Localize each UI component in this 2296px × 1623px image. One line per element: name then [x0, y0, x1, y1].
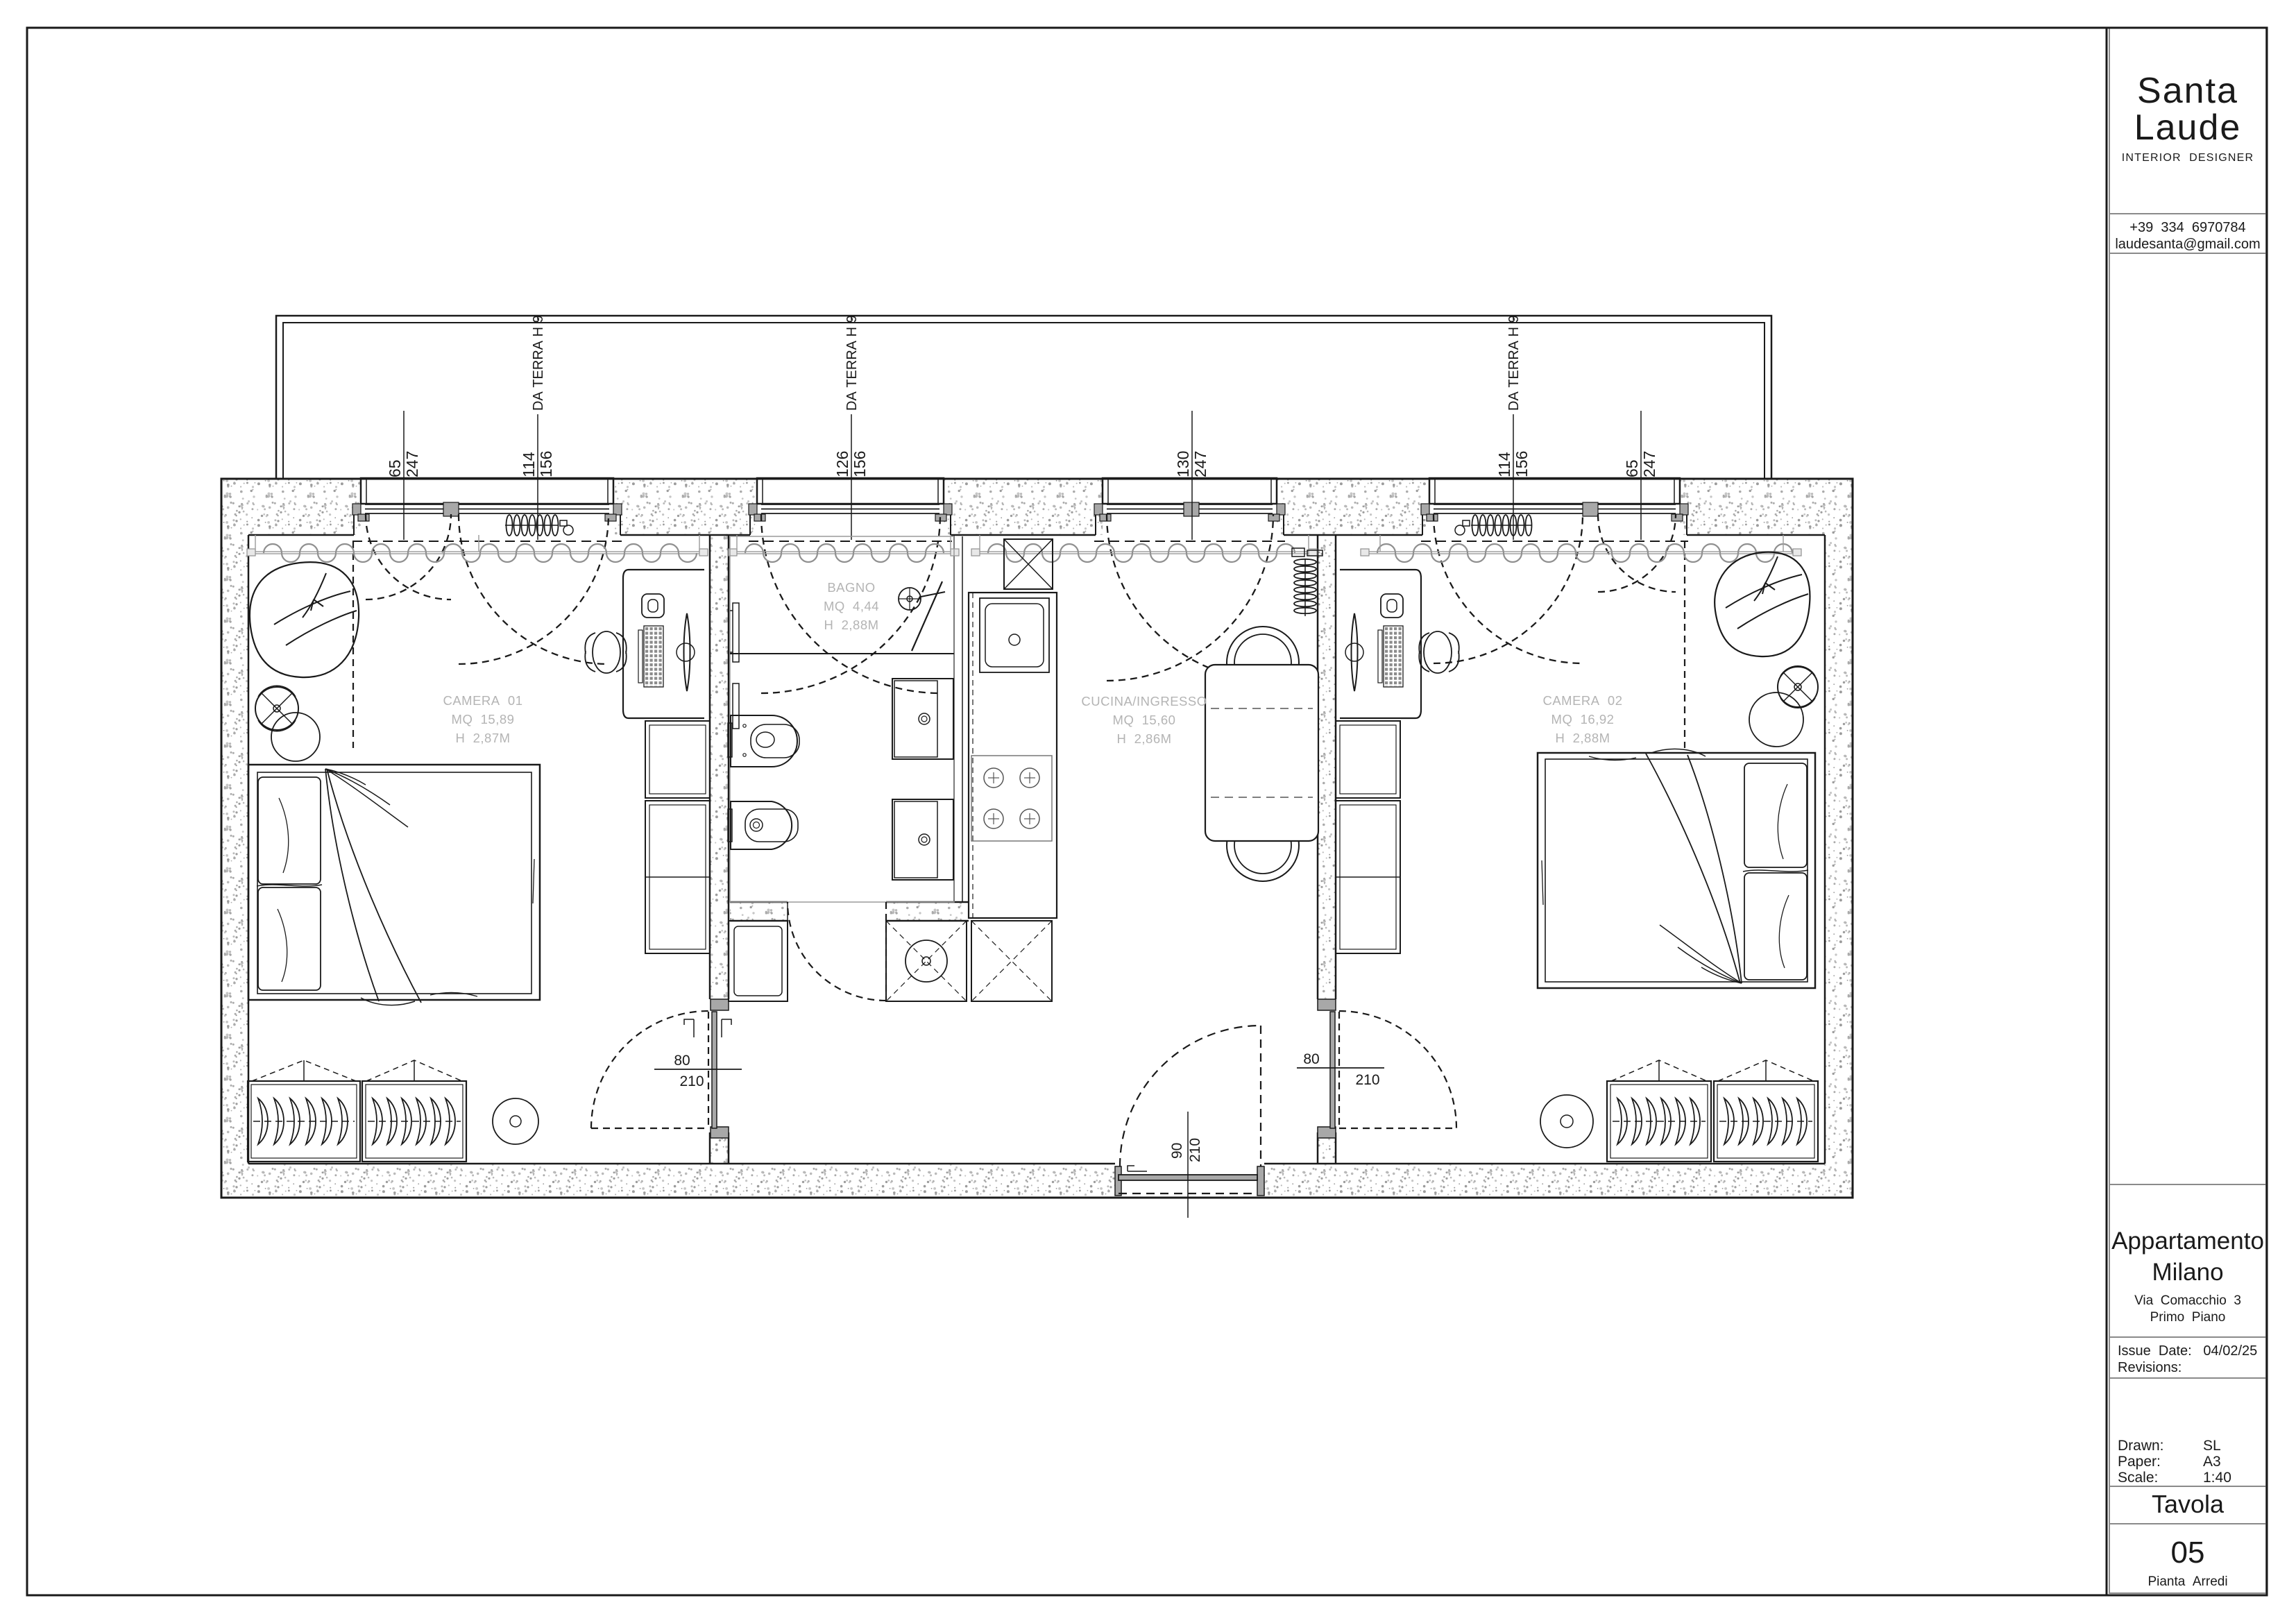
svg-text:DA TERRA H 9: DA TERRA H 9: [1506, 315, 1522, 411]
svg-text:156: 156: [851, 451, 869, 477]
svg-text:126: 126: [833, 451, 851, 477]
svg-text:SL: SL: [2203, 1438, 2221, 1454]
svg-text:210: 210: [1355, 1072, 1379, 1088]
svg-text:H 2,88M: H 2,88M: [824, 618, 878, 632]
svg-text:65: 65: [386, 459, 404, 477]
svg-text:210: 210: [1187, 1138, 1203, 1162]
svg-text:BAGNO: BAGNO: [827, 580, 875, 595]
svg-text:Laude: Laude: [2134, 108, 2242, 148]
svg-text:1:40: 1:40: [2203, 1470, 2231, 1486]
svg-text:247: 247: [403, 451, 421, 477]
svg-text:DA TERRA H 9: DA TERRA H 9: [531, 315, 546, 411]
svg-text:Paper:: Paper:: [2118, 1454, 2161, 1470]
svg-text:Scale:: Scale:: [2118, 1470, 2158, 1486]
svg-text:Via Comacchio 3: Via Comacchio 3: [2134, 1293, 2241, 1308]
svg-text:156: 156: [1513, 451, 1531, 477]
svg-text:MQ 15,89: MQ 15,89: [452, 712, 515, 726]
svg-text:80: 80: [1303, 1051, 1319, 1067]
svg-text:Drawn:: Drawn:: [2118, 1438, 2164, 1454]
svg-text:Appartamento: Appartamento: [2111, 1227, 2264, 1255]
svg-text:Issue Date: 04/02/25: Issue Date: 04/02/25: [2118, 1343, 2257, 1359]
svg-text:MQ 16,92: MQ 16,92: [1551, 712, 1615, 726]
svg-text:CUCINA/INGRESSO: CUCINA/INGRESSO: [1081, 694, 1207, 708]
svg-text:Milano: Milano: [2152, 1259, 2223, 1286]
svg-text:247: 247: [1191, 451, 1209, 477]
svg-text:114: 114: [520, 452, 538, 477]
svg-text:Revisions:: Revisions:: [2118, 1360, 2182, 1375]
svg-text:MQ 15,60: MQ 15,60: [1113, 713, 1176, 727]
svg-text:CAMERA 01: CAMERA 01: [443, 693, 522, 708]
svg-text:05: 05: [2171, 1536, 2205, 1570]
svg-text:DA TERRA H 9: DA TERRA H 9: [844, 315, 860, 411]
svg-text:H 2,86M: H 2,86M: [1116, 731, 1171, 746]
svg-text:MQ 4,44: MQ 4,44: [824, 599, 879, 613]
svg-text:laudesanta@gmail.com: laudesanta@gmail.com: [2115, 237, 2260, 252]
svg-text:247: 247: [1640, 451, 1658, 477]
svg-text:114: 114: [1495, 452, 1513, 477]
svg-text:+39 334 6970784: +39 334 6970784: [2129, 220, 2245, 235]
svg-text:INTERIOR DESIGNER: INTERIOR DESIGNER: [2122, 152, 2254, 164]
svg-text:65: 65: [1623, 459, 1641, 477]
svg-text:90: 90: [1169, 1143, 1185, 1159]
svg-text:Santa: Santa: [2137, 71, 2238, 111]
svg-text:156: 156: [537, 451, 555, 477]
svg-text:Tavola: Tavola: [2152, 1490, 2225, 1518]
svg-text:CAMERA 02: CAMERA 02: [1542, 693, 1622, 708]
svg-text:Primo Piano: Primo Piano: [2150, 1310, 2226, 1325]
svg-text:80: 80: [674, 1053, 690, 1069]
svg-text:H 2,87M: H 2,87M: [455, 731, 510, 745]
svg-text:Pianta Arredi: Pianta Arredi: [2148, 1574, 2227, 1589]
svg-text:A3: A3: [2203, 1454, 2221, 1470]
svg-text:H 2,88M: H 2,88M: [1555, 731, 1610, 745]
svg-text:210: 210: [679, 1073, 704, 1089]
svg-text:130: 130: [1174, 451, 1192, 477]
